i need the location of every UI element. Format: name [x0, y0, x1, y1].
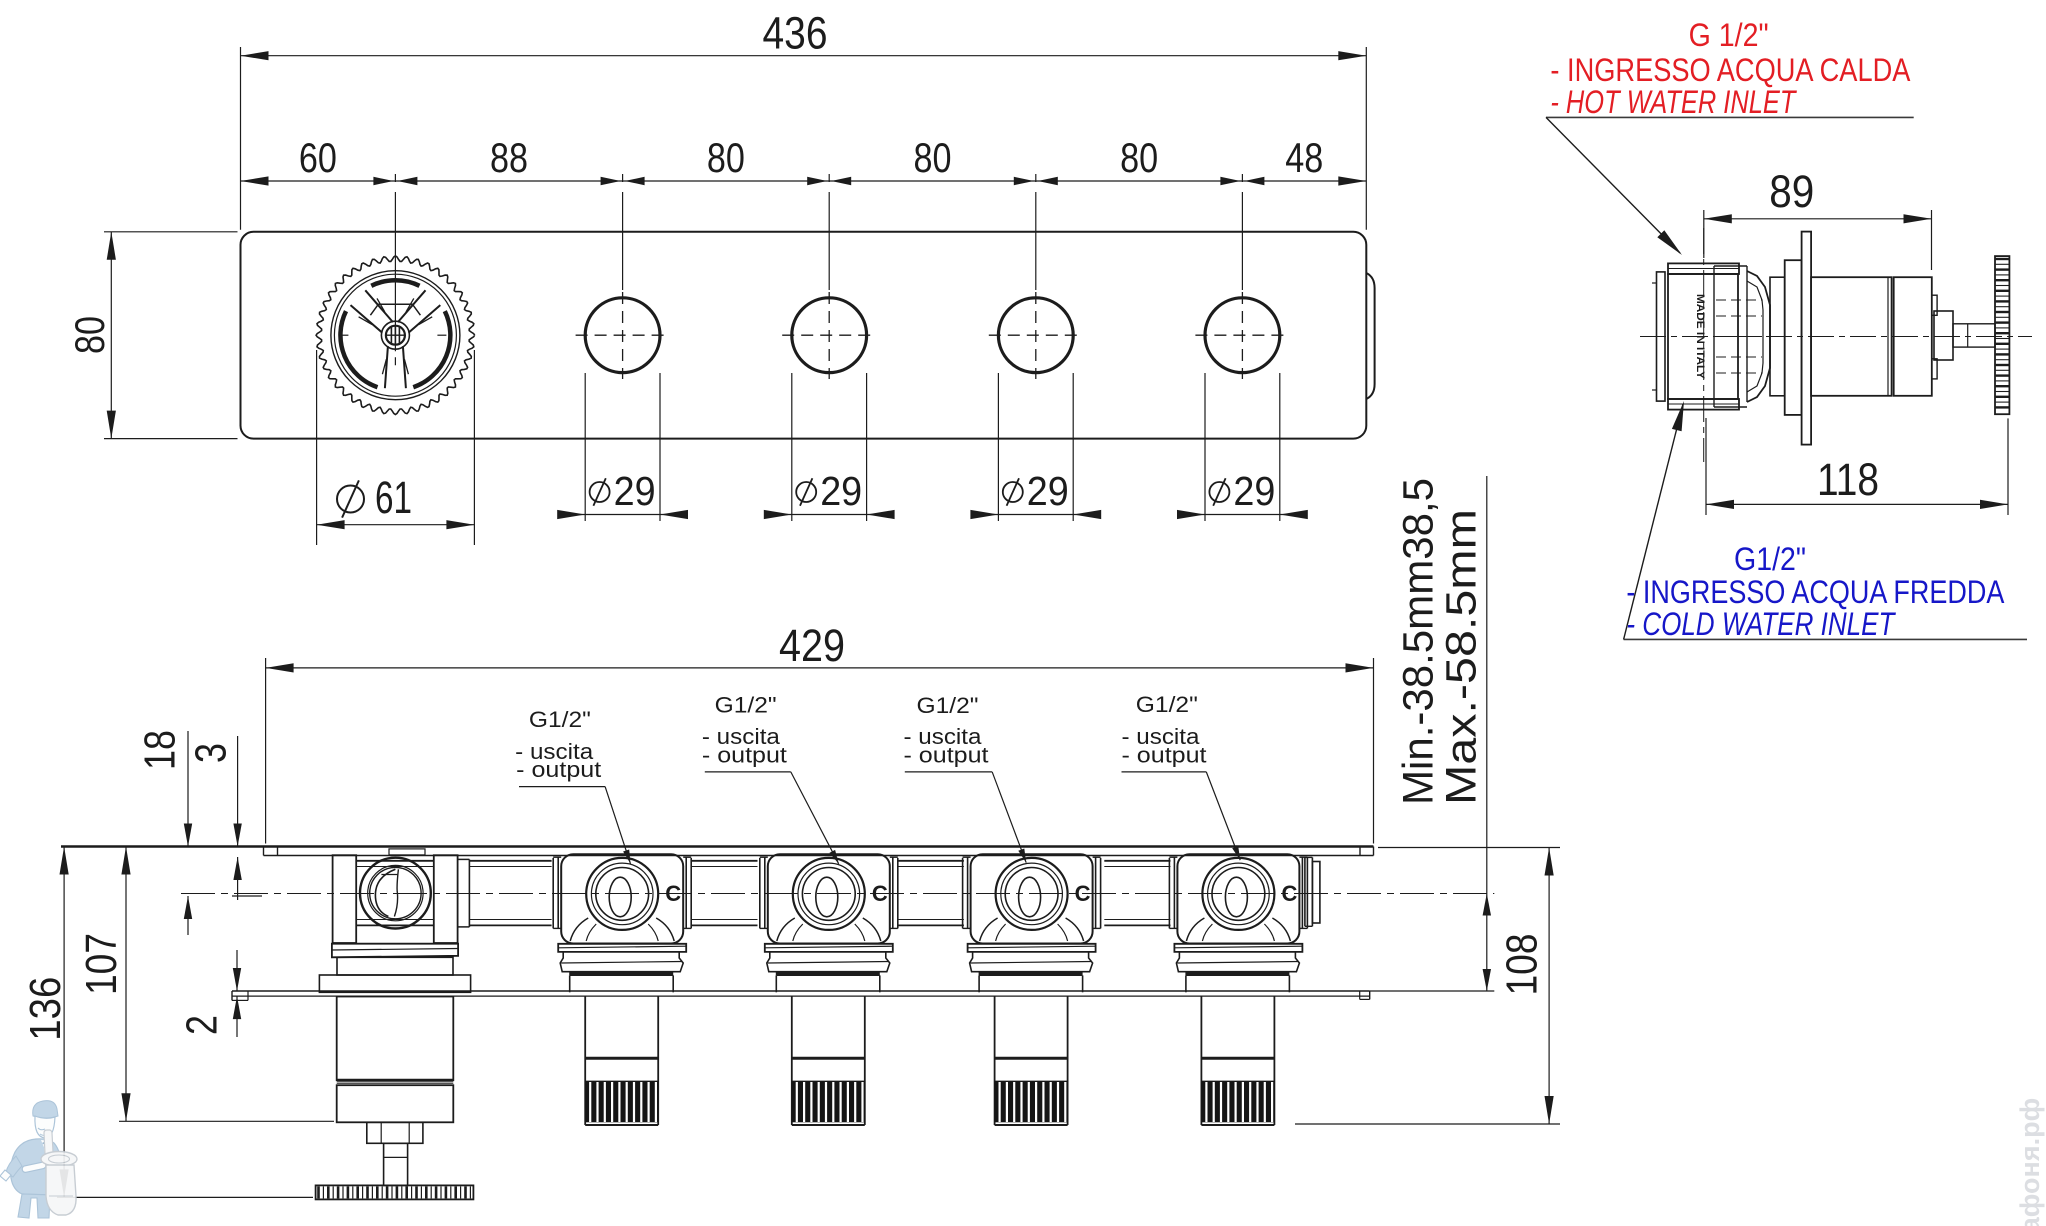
svg-text:G1/2": G1/2": [917, 693, 979, 718]
svg-text:G1/2": G1/2": [529, 707, 591, 732]
svg-text:436: 436: [763, 8, 828, 59]
svg-text:80: 80: [707, 134, 745, 181]
svg-text:107: 107: [77, 933, 126, 995]
svg-text:18: 18: [136, 730, 185, 770]
svg-text:G 1/2": G 1/2": [1689, 17, 1769, 53]
svg-text:3: 3: [187, 743, 236, 763]
svg-text:29: 29: [1027, 468, 1069, 514]
svg-text:88: 88: [490, 134, 528, 181]
svg-text:429: 429: [779, 620, 845, 671]
svg-text:118: 118: [1817, 454, 1879, 505]
svg-text:G1/2": G1/2": [1136, 692, 1198, 717]
svg-text:89: 89: [1769, 166, 1814, 217]
svg-text:80: 80: [66, 316, 113, 354]
svg-text:афоня.рф: афоня.рф: [2015, 1098, 2045, 1226]
svg-text:C: C: [665, 881, 681, 906]
svg-text:- output: - output: [516, 757, 601, 782]
svg-text:C: C: [1075, 881, 1091, 906]
svg-text:- HOT WATER INLET: - HOT WATER INLET: [1550, 84, 1797, 120]
svg-text:C: C: [1281, 881, 1297, 906]
svg-text:2: 2: [178, 1015, 227, 1035]
svg-text:C: C: [872, 881, 888, 906]
svg-text:108: 108: [1498, 934, 1547, 996]
svg-text:80: 80: [1120, 134, 1158, 181]
svg-text:- output: - output: [1122, 743, 1207, 768]
svg-text:- INGRESSO ACQUA CALDA: - INGRESSO ACQUA CALDA: [1550, 52, 1911, 88]
svg-text:- output: - output: [904, 743, 989, 768]
svg-text:- output: - output: [702, 743, 787, 768]
svg-text:136: 136: [21, 977, 70, 1041]
svg-text:G1/2": G1/2": [1734, 541, 1806, 577]
svg-text:G1/2": G1/2": [715, 692, 777, 717]
svg-text:80: 80: [914, 134, 952, 181]
svg-text:29: 29: [1233, 468, 1275, 514]
svg-text:- COLD WATER INLET: - COLD WATER INLET: [1626, 606, 1896, 642]
svg-text:60: 60: [299, 134, 337, 181]
svg-text:29: 29: [820, 468, 862, 514]
svg-text:Min.-38.5mm38,5: Min.-38.5mm38,5: [1394, 478, 1442, 805]
svg-text:Max.-58.5mm: Max.-58.5mm: [1437, 509, 1485, 805]
svg-text:- INGRESSO ACQUA FREDDA: - INGRESSO ACQUA FREDDA: [1626, 574, 2005, 610]
svg-text:48: 48: [1285, 134, 1323, 181]
svg-text:29: 29: [614, 468, 656, 514]
svg-text:61: 61: [375, 472, 412, 523]
